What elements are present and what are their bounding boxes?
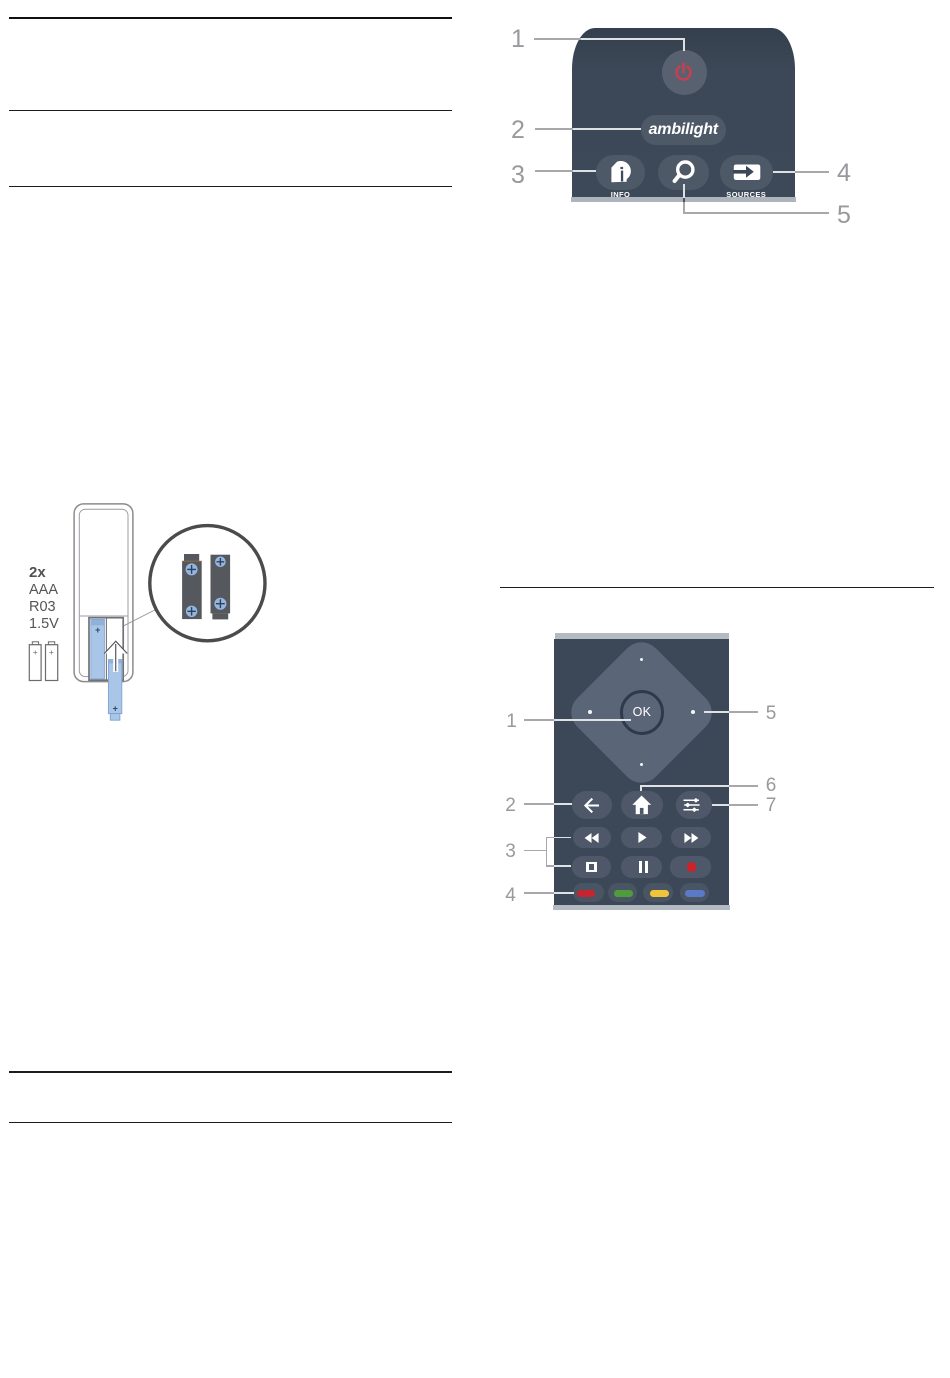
svg-text:+: + xyxy=(113,704,118,714)
svg-text:+: + xyxy=(49,647,54,657)
svg-text:+: + xyxy=(95,625,100,635)
svg-text:+: + xyxy=(33,647,38,657)
